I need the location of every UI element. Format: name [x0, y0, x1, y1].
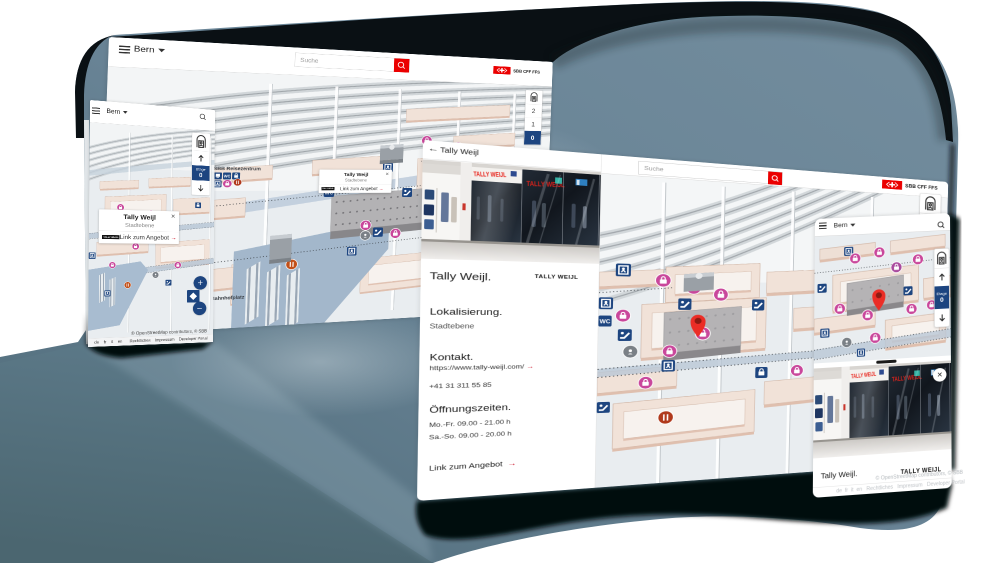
svg-text:WC: WC: [224, 174, 231, 178]
svg-text:SBB CFF FFS: SBB CFF FFS: [513, 69, 540, 75]
svg-text:TALLY WEIJL: TALLY WEIJL: [473, 170, 506, 178]
svg-text:WC: WC: [600, 319, 611, 325]
svg-text:SBB Reisezentrum: SBB Reisezentrum: [214, 167, 261, 172]
svg-text:TALLY WEIJL: TALLY WEIJL: [535, 273, 579, 280]
svg-text:SBB CFF FFS: SBB CFF FFS: [905, 183, 938, 191]
